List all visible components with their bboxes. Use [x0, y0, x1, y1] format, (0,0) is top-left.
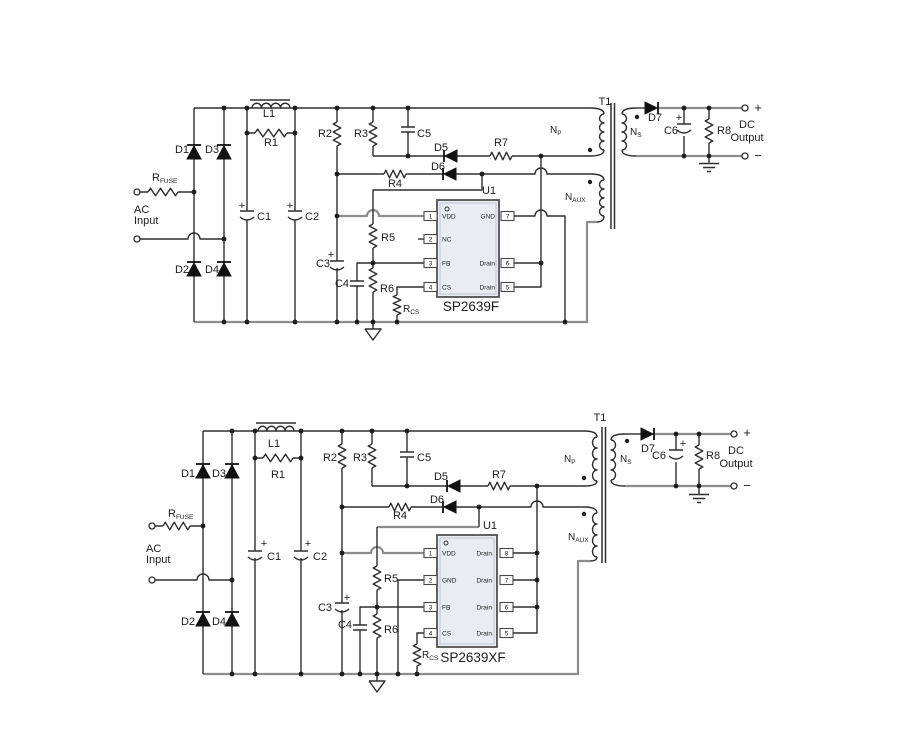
pin-number: 5 [505, 631, 509, 638]
label-d6: D6 [431, 161, 445, 173]
ac-input-terminal-bottom [149, 577, 155, 583]
label-c2: C2 [313, 551, 327, 563]
label-d7: D7 [648, 112, 662, 124]
pin-name-gnd: GND [481, 214, 496, 221]
c6-plus-sign: + [676, 112, 682, 124]
label-c6: C6 [664, 125, 678, 137]
label-t1: T1 [594, 412, 607, 424]
pin-name-vdd: VDD [442, 551, 456, 558]
pin-name-drain: Drain [476, 605, 492, 612]
pin-name-fb: FB [442, 605, 450, 612]
label-part-number: SP2639F [443, 299, 499, 314]
label-r6: R6 [384, 624, 398, 636]
ns-polarity-dot [635, 115, 639, 119]
c1-plus-sign: + [261, 538, 267, 550]
dc-output-terminal-plus [731, 431, 737, 437]
label-r7: R7 [494, 137, 508, 149]
pin-number: 8 [505, 551, 509, 558]
output-plus-sign: + [754, 100, 762, 115]
label-t1: T1 [599, 96, 612, 108]
label-dc: DC [728, 445, 744, 457]
label-r8: R8 [706, 450, 720, 462]
label-d6: D6 [430, 494, 444, 506]
label-l1: L1 [268, 438, 280, 450]
label-c5: C5 [417, 452, 431, 464]
pin-name-nc: NC [442, 237, 452, 244]
label-d1: D1 [175, 144, 189, 156]
label-d2: D2 [175, 264, 189, 276]
pin-number: 5 [506, 285, 510, 292]
dc-output-terminal-minus [731, 483, 737, 489]
pin-name-gnd: GND [442, 578, 457, 585]
pin-number: 1 [429, 214, 433, 221]
pin-name-vdd: VDD [442, 214, 456, 221]
label-d5: D5 [434, 471, 448, 483]
pin-name-cs: CS [442, 285, 452, 292]
c1-plus-sign: + [239, 200, 245, 212]
label-input: Input [134, 215, 158, 227]
label-r5: R5 [381, 232, 395, 244]
label-r5: R5 [384, 573, 398, 585]
label-c4: C4 [338, 619, 352, 631]
ns-polarity-dot [625, 439, 629, 443]
c6-plus-sign: + [680, 438, 686, 450]
label-output: Output [730, 132, 763, 144]
c3-plus-sign: + [328, 249, 334, 261]
pin-number: 1 [429, 551, 433, 558]
pin-name-fb: FB [442, 261, 450, 268]
pin-name-drain: Drain [476, 631, 492, 638]
pin-number: 3 [429, 605, 433, 612]
label-part-number: SP2639XF [440, 650, 505, 665]
label-r1: R1 [264, 137, 278, 149]
output-minus-sign: − [743, 478, 751, 493]
label-c1: C1 [267, 551, 281, 563]
label-r6: R6 [380, 283, 394, 295]
label-output: Output [719, 458, 752, 470]
schematic-page: 1 2 3 4 7 6 5 VDD NC FB CS GND Drain Dra… [0, 0, 900, 751]
label-r2: R2 [318, 128, 332, 140]
pin-name-cs: CS [442, 631, 452, 638]
pin-number: 2 [429, 237, 433, 244]
label-u1: U1 [482, 185, 496, 197]
label-c6: C6 [652, 450, 666, 462]
pin-name-drain: Drain [479, 285, 495, 292]
label-r3: R3 [354, 128, 368, 140]
c2-plus-sign: + [287, 200, 293, 212]
label-d4: D4 [205, 264, 219, 276]
c3-plus-sign: + [344, 592, 350, 604]
dc-output-terminal-minus [742, 153, 748, 159]
label-d4: D4 [212, 616, 226, 628]
np-polarity-dot [588, 148, 592, 152]
label-r7: R7 [492, 469, 506, 481]
pin-number: 3 [429, 261, 433, 268]
label-c5: C5 [417, 128, 431, 140]
label-c3: C3 [318, 602, 332, 614]
label-r3: R3 [353, 452, 367, 464]
pin-number: 4 [429, 285, 433, 292]
label-r8: R8 [717, 125, 731, 137]
pin-name-drain: Drain [476, 578, 492, 585]
label-r1: R1 [271, 469, 285, 481]
output-plus-sign: + [743, 425, 751, 440]
ac-input-terminal-top [134, 189, 140, 195]
pin-number: 6 [506, 261, 510, 268]
pin-number: 6 [505, 605, 509, 612]
pin-name-drain: Drain [476, 551, 492, 558]
naux-polarity-dot [582, 512, 586, 516]
output-minus-sign: − [754, 148, 762, 163]
label-d5: D5 [434, 142, 448, 154]
pin-number: 4 [429, 631, 433, 638]
label-l1: L1 [263, 108, 275, 120]
label-c4: C4 [335, 278, 349, 290]
schematic-canvas: 1 2 3 4 7 6 5 VDD NC FB CS GND Drain Dra… [0, 0, 900, 751]
label-r4: R4 [388, 178, 402, 190]
ac-input-terminal-bottom [134, 236, 140, 242]
c2-plus-sign: + [305, 538, 311, 550]
ac-input-terminal-top [149, 523, 155, 529]
naux-polarity-dot [588, 180, 592, 184]
label-dc: DC [739, 119, 755, 131]
np-polarity-dot [582, 476, 586, 480]
label-d3: D3 [205, 144, 219, 156]
label-r4: R4 [393, 510, 407, 522]
label-c2: C2 [305, 211, 319, 223]
dc-output-terminal-plus [742, 105, 748, 111]
label-c1: C1 [257, 211, 271, 223]
label-d2: D2 [181, 616, 195, 628]
pin-number: 7 [506, 214, 510, 221]
label-input: Input [146, 554, 170, 566]
pin-number: 7 [505, 578, 509, 585]
label-r2: R2 [323, 452, 337, 464]
pin-name-drain: Drain [479, 261, 495, 268]
label-u1: U1 [483, 520, 497, 532]
pin-number: 2 [429, 578, 433, 585]
label-d1: D1 [181, 468, 195, 480]
label-d3: D3 [212, 468, 226, 480]
